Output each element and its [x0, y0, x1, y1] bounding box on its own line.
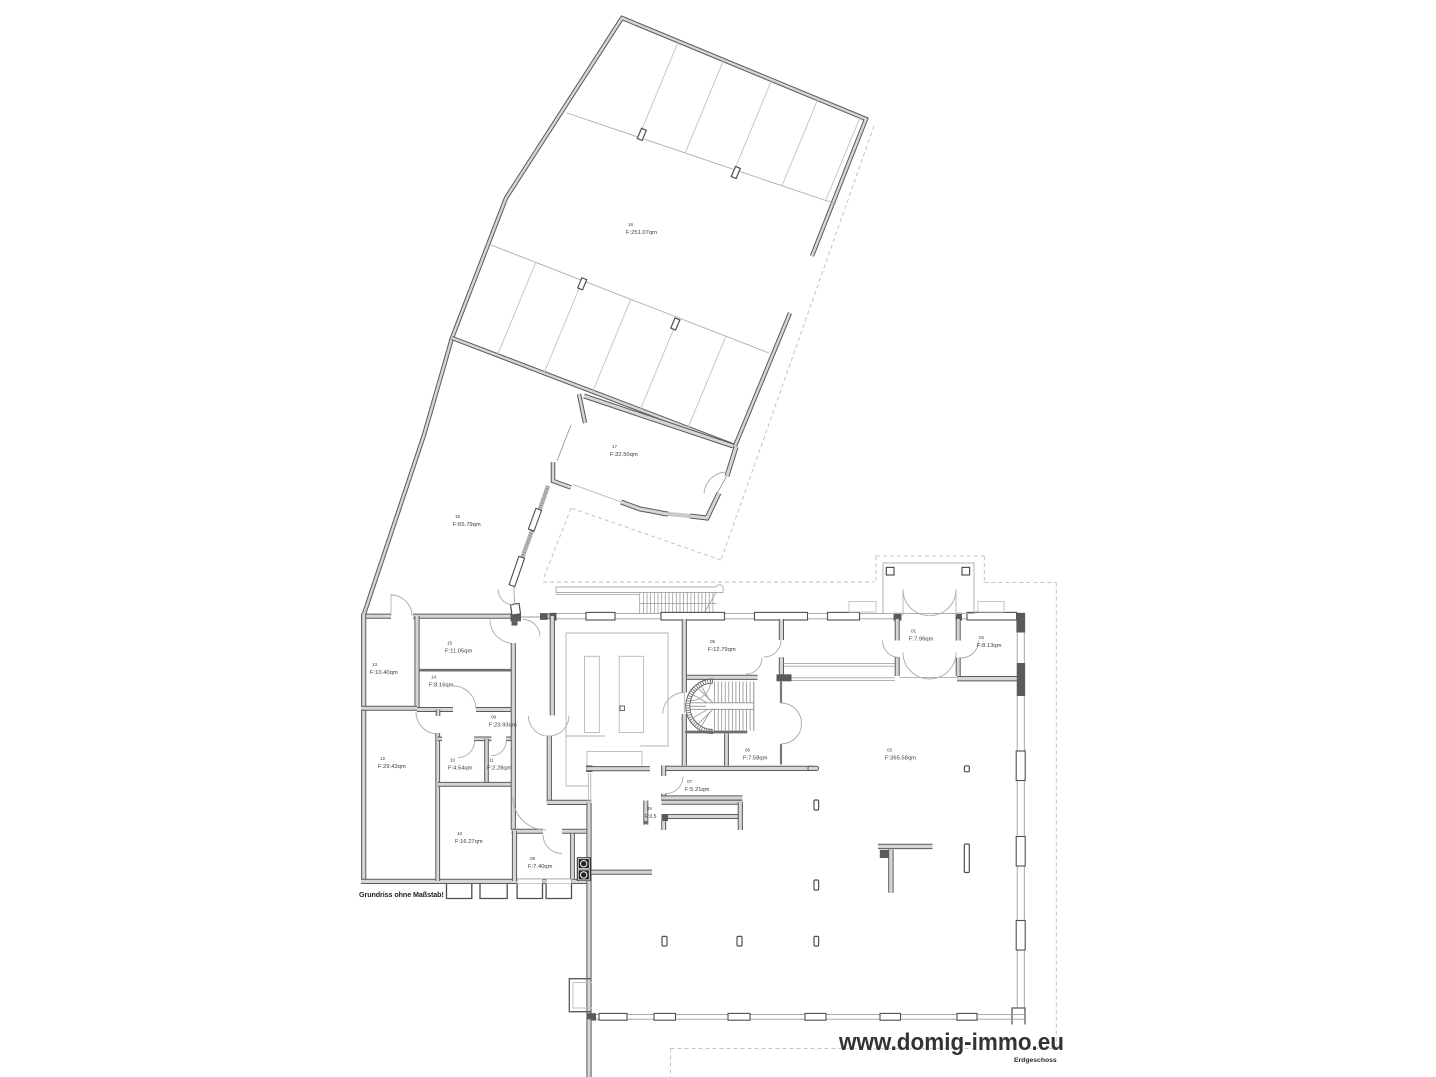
svg-text:10: 10	[450, 758, 456, 763]
svg-text:F:4.54qm: F:4.54qm	[448, 766, 473, 772]
svg-text:05: 05	[710, 639, 716, 644]
svg-text:F:7.40qm: F:7.40qm	[528, 864, 553, 870]
svg-text:F:251.07qm: F:251.07qm	[626, 230, 657, 236]
svg-text:07: 07	[687, 779, 693, 784]
svg-text:F:11.05qm: F:11.05qm	[445, 649, 472, 655]
svg-text:www.domig-immo.eu: www.domig-immo.eu	[838, 1029, 1064, 1056]
svg-text:F:10.40qm: F:10.40qm	[370, 670, 398, 676]
svg-text:09: 09	[491, 715, 497, 720]
svg-text:06: 06	[745, 748, 751, 753]
svg-text:17: 17	[612, 444, 618, 449]
svg-text:F:16.27qm: F:16.27qm	[455, 839, 483, 845]
svg-text:F:65.79qm: F:65.79qm	[453, 522, 481, 528]
svg-text:15: 15	[455, 514, 461, 519]
svg-text:F:8.13qm: F:8.13qm	[977, 643, 1002, 649]
svg-text:01: 01	[911, 629, 917, 634]
svg-text:11: 11	[489, 758, 494, 763]
svg-text:F:12.79qm: F:12.79qm	[708, 647, 736, 653]
svg-text:16: 16	[628, 222, 634, 227]
svg-text:Grundriss ohne Maßstab!: Grundriss ohne Maßstab!	[359, 890, 444, 899]
svg-text:39: 39	[647, 806, 652, 811]
svg-text:03: 03	[887, 748, 893, 753]
svg-text:F:32.50qm: F:32.50qm	[610, 452, 638, 458]
svg-text:14: 14	[431, 675, 437, 680]
svg-text:F:7.96qm: F:7.96qm	[909, 637, 934, 643]
svg-text:12: 12	[380, 756, 386, 761]
svg-text:02: 02	[979, 635, 985, 640]
svg-text:08: 08	[530, 856, 536, 861]
svg-text:F:29.43qm: F:29.43qm	[378, 764, 406, 770]
svg-text:F:2.28qm: F:2.28qm	[487, 766, 512, 772]
svg-text:15: 15	[447, 641, 453, 646]
svg-text:F:23.93qm: F:23.93qm	[489, 723, 517, 729]
svg-text:10: 10	[457, 831, 463, 836]
svg-text:13: 13	[372, 662, 378, 667]
svg-text:F:365.58qm: F:365.58qm	[885, 756, 916, 762]
svg-text:F:8.16qm: F:8.16qm	[429, 683, 454, 689]
svg-text:Erdgeschoss: Erdgeschoss	[1014, 1057, 1057, 1064]
svg-text:F:0.5: F:0.5	[645, 814, 657, 820]
svg-text:F:5.21qm: F:5.21qm	[685, 787, 710, 793]
svg-text:F:7.58qm: F:7.58qm	[743, 756, 768, 762]
